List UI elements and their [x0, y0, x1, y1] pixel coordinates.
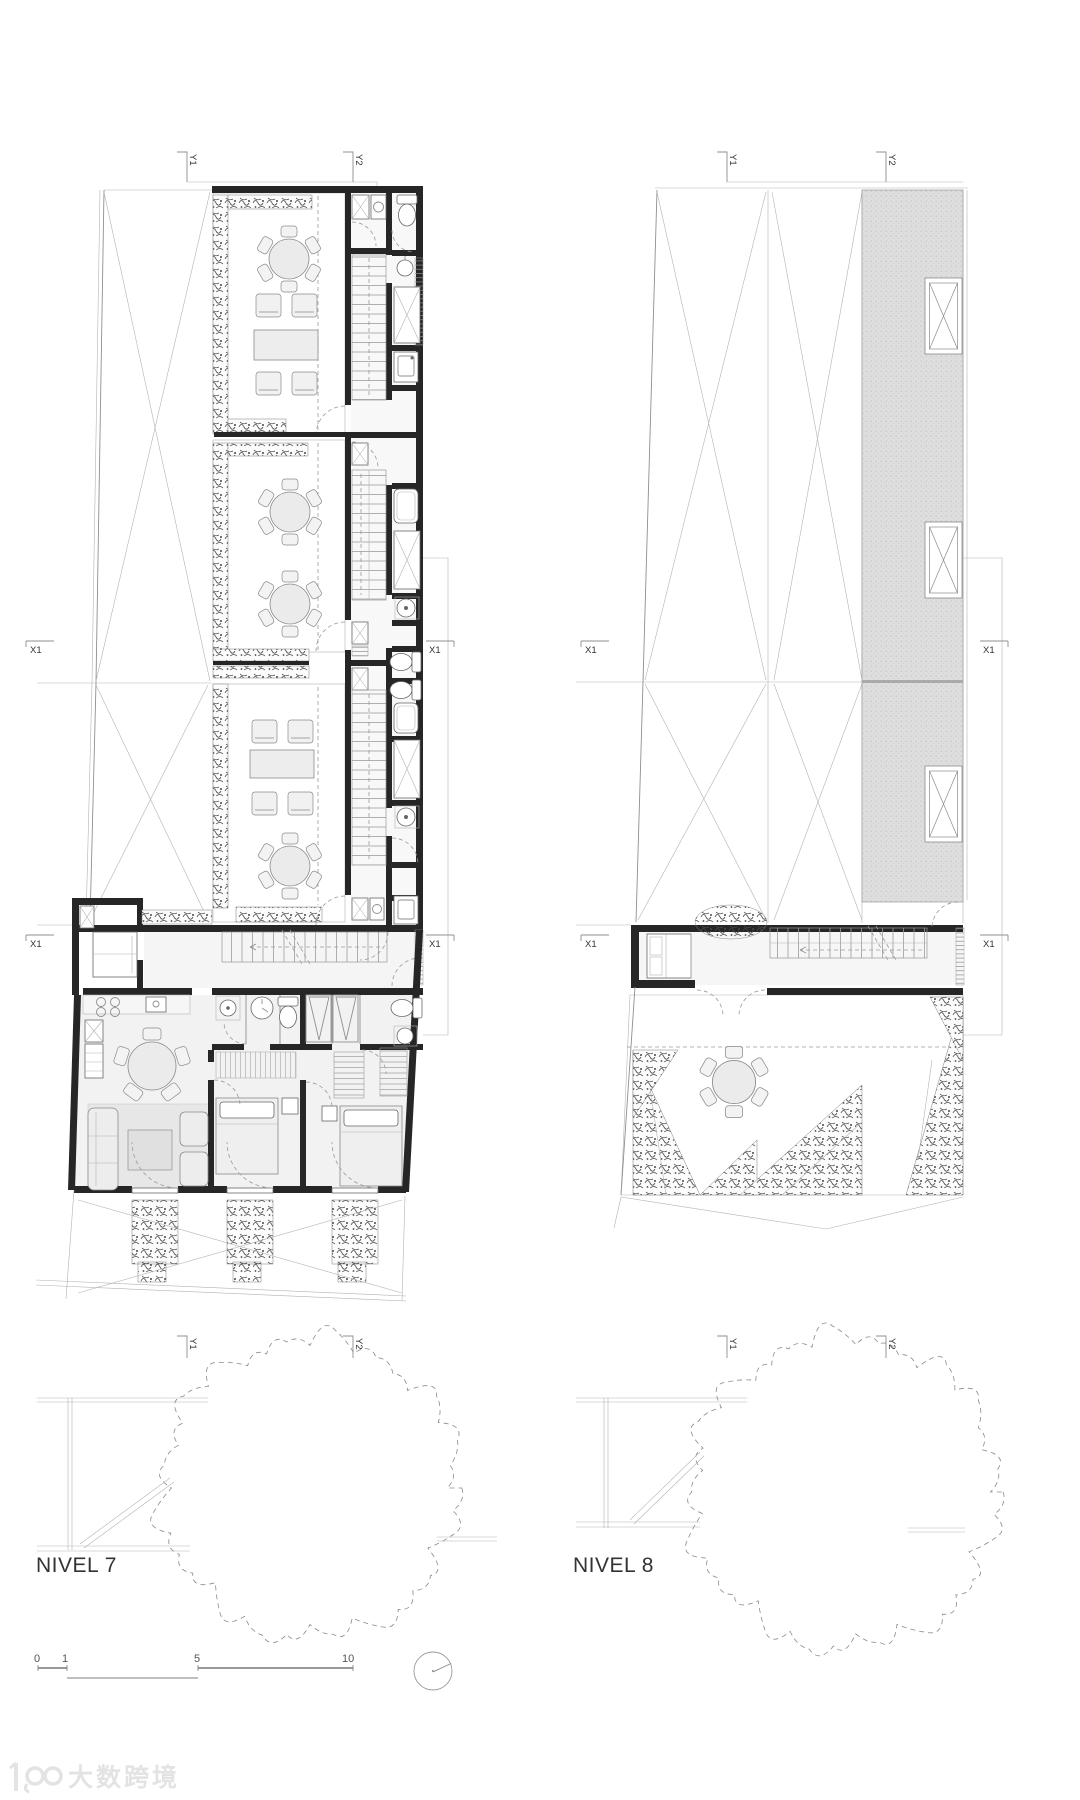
plan-title-nivel-7: NIVEL 7 [36, 1554, 117, 1577]
toilet-icon [390, 652, 421, 672]
ladder [956, 928, 964, 985]
watermark-text: 大数跨境 [68, 1763, 180, 1792]
nightstand [322, 1106, 337, 1121]
skylight [925, 766, 962, 842]
section-marker-x1: X1 [30, 939, 42, 950]
section-marker-y1: Y1 [187, 154, 198, 166]
planter [213, 443, 228, 651]
scale-label-1: 1 [62, 1653, 68, 1665]
planter [228, 419, 286, 432]
toilet-icon [391, 998, 422, 1018]
stair-to-roof [334, 1052, 364, 1098]
scale-label-10: 10 [342, 1653, 354, 1665]
planter [228, 195, 312, 209]
scale-label-5: 5 [194, 1653, 200, 1665]
section-marker-x1: X1 [585, 939, 597, 950]
section-marker-x1: X1 [429, 645, 441, 656]
section-marker-y1: Y1 [727, 154, 738, 166]
floor-plan-sheet: Y1 Y2 Y1 Y2 X1 X1 X1 X1 NIVEL 7 [0, 0, 1080, 1800]
planter [228, 443, 308, 456]
sofa [88, 1108, 118, 1190]
sink-icon [146, 997, 166, 1012]
section-marker-x1: X1 [429, 939, 441, 950]
vegetation-clump [695, 905, 767, 939]
sink-icon [397, 260, 413, 276]
skylight [925, 522, 962, 598]
closet [216, 1052, 296, 1078]
section-marker-y2: Y2 [353, 1338, 364, 1350]
armchair [180, 1112, 208, 1146]
section-marker-x1: X1 [585, 645, 597, 656]
scale-label-0: 0 [34, 1653, 40, 1665]
coffee-table [128, 1130, 172, 1170]
section-marker-y1: Y1 [187, 1338, 198, 1350]
section-marker-x1: X1 [983, 645, 995, 656]
section-marker-y2: Y2 [886, 154, 897, 166]
section-marker-y1: Y1 [727, 1338, 738, 1350]
hanging-planter [332, 1200, 378, 1264]
skylight [925, 278, 962, 354]
planter [236, 907, 322, 922]
washer-icon [397, 1028, 413, 1044]
toilet-icon [278, 997, 298, 1028]
elevator [93, 932, 137, 977]
roof-strip [862, 190, 963, 902]
planter [213, 684, 228, 908]
coffee-table [254, 330, 318, 360]
section-marker-x1: X1 [30, 645, 42, 656]
party-planters [213, 649, 309, 678]
drawing-sheet: Y1 Y2 Y1 Y2 X1 X1 X1 X1 NIVEL 7 [0, 0, 1080, 1800]
armchair [180, 1152, 208, 1186]
pillow [344, 1110, 398, 1126]
hanging-planter [227, 1200, 273, 1264]
section-marker-x1: X1 [983, 939, 995, 950]
elevator-n8 [647, 934, 691, 978]
toilet-icon [390, 680, 421, 700]
stair-to-roof [380, 1048, 407, 1096]
planter [213, 195, 228, 433]
nightstand [282, 1098, 298, 1114]
pillow [220, 1102, 274, 1118]
toilet-icon [397, 195, 417, 226]
planter [142, 910, 212, 924]
hanging-planter [132, 1200, 178, 1264]
coffee-table [250, 750, 314, 778]
section-marker-y2: Y2 [353, 154, 364, 166]
plan-title-nivel-8: NIVEL 8 [573, 1554, 654, 1577]
